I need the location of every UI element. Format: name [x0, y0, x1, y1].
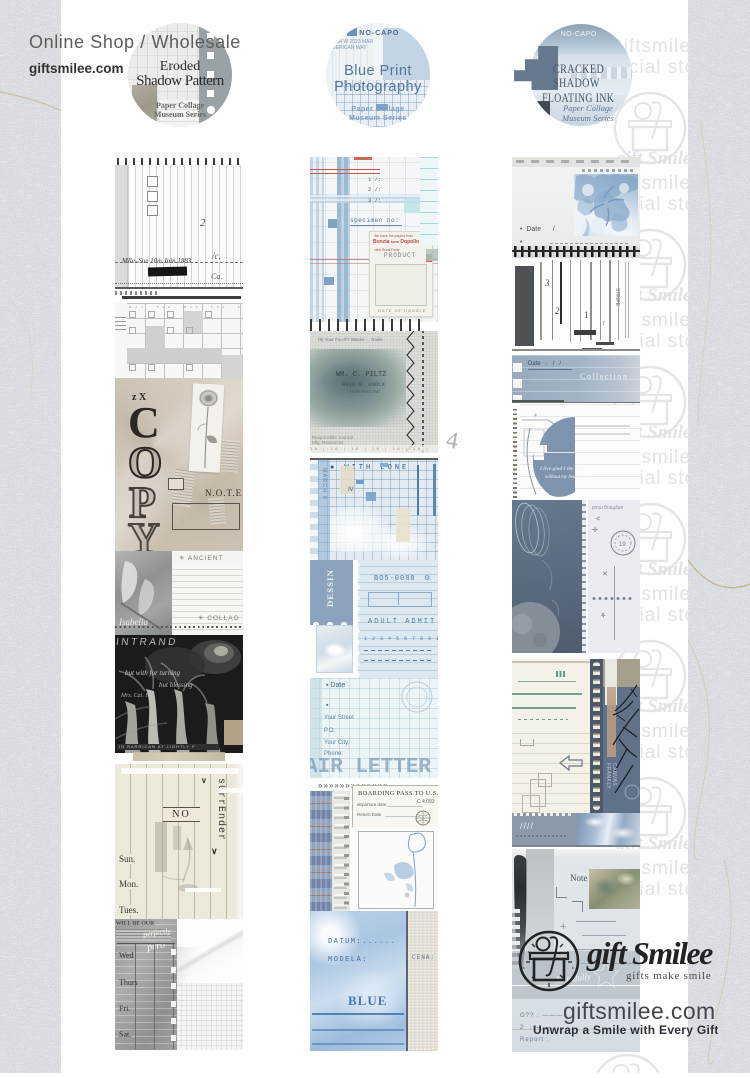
svg-text:I live glad I the sun: I live glad I the sun: [539, 466, 583, 472]
svg-text:without my heart down: without my heart down: [545, 475, 591, 480]
svg-text:but with for turning: but with for turning: [125, 669, 181, 677]
svg-text:19: 19: [619, 542, 626, 548]
svg-text:INTRAND: INTRAND: [115, 637, 178, 648]
svg-text:4: 4: [534, 413, 537, 419]
svg-text:but blessing: but blessing: [159, 681, 193, 689]
svg-text:Mrs. Cal. Ha.: Mrs. Cal. Ha.: [120, 693, 154, 699]
